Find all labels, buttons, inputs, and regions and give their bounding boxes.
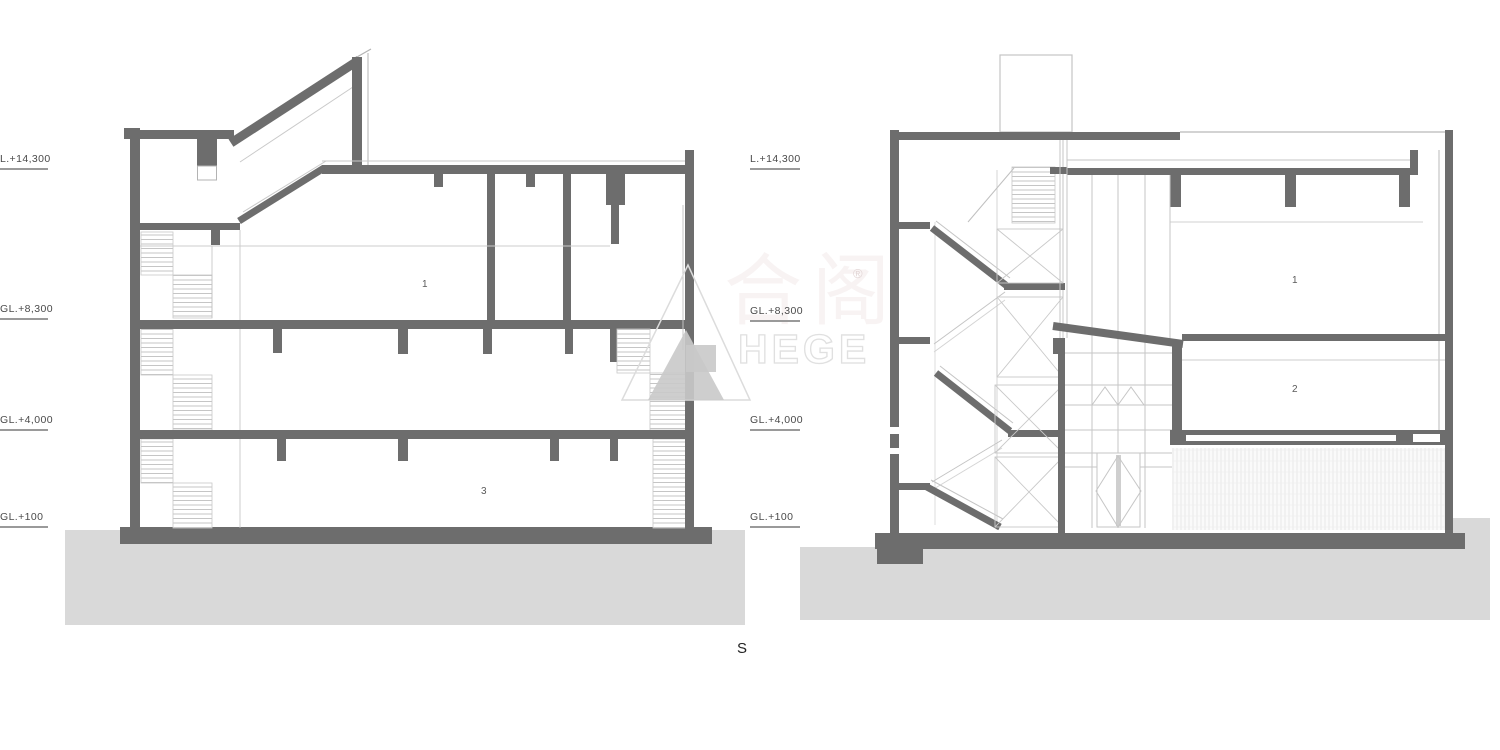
ground-mass: [65, 530, 745, 625]
right-room-1: 1: [1292, 275, 1298, 286]
interior-column: [563, 174, 571, 320]
stair-core-left: [141, 230, 240, 528]
exterior-wall-left: [890, 130, 899, 533]
drawing-caption: S: [737, 640, 747, 657]
right-room-2: 2: [1292, 384, 1298, 395]
exterior-wall-right: [685, 150, 694, 533]
roof-main: [890, 132, 1180, 140]
ridge-post: [352, 57, 362, 166]
left-level-4000: GL.+4,000: [0, 414, 48, 431]
left-level-8300: GL.+8,300: [0, 303, 48, 320]
roof-beam: [1067, 168, 1418, 175]
left-room-1: 1: [422, 279, 428, 290]
foundation-slab: [875, 533, 1465, 549]
right-level-8300: GL.+8,300: [750, 305, 800, 322]
section-drawings: [0, 0, 1500, 750]
floor-slab-4000: [130, 430, 693, 439]
exterior-wall-right: [1445, 130, 1453, 533]
left-level-100: GL.+100: [0, 511, 48, 528]
left-level-14300: L.+14,300: [0, 153, 48, 170]
hanging-beam: [197, 139, 217, 166]
sloped-roof: [231, 60, 359, 143]
left-room-3: 3: [481, 486, 487, 497]
roof-main: [322, 165, 693, 174]
floor-slab-8300: [1182, 334, 1445, 341]
floor-slab-8300: [130, 320, 693, 329]
right-level-14300: L.+14,300: [750, 153, 800, 170]
interior-column: [487, 174, 495, 320]
roof-bulkhead: [1000, 55, 1072, 132]
plinth-hatch: [1172, 448, 1445, 530]
top-landing: [134, 223, 240, 230]
right-building-section: [800, 55, 1490, 620]
stair-tower: [898, 140, 1067, 530]
atrium-column: [1172, 344, 1182, 432]
right-level-4000: GL.+4,000: [750, 414, 800, 431]
stair-core-right: [617, 329, 687, 528]
right-level-100: GL.+100: [750, 511, 800, 528]
left-building-section: [65, 49, 745, 625]
exterior-wall-left: [130, 128, 140, 533]
foundation-slab: [120, 527, 712, 544]
roof-flat-left: [124, 130, 234, 139]
roof-stair-flight: [239, 168, 324, 221]
